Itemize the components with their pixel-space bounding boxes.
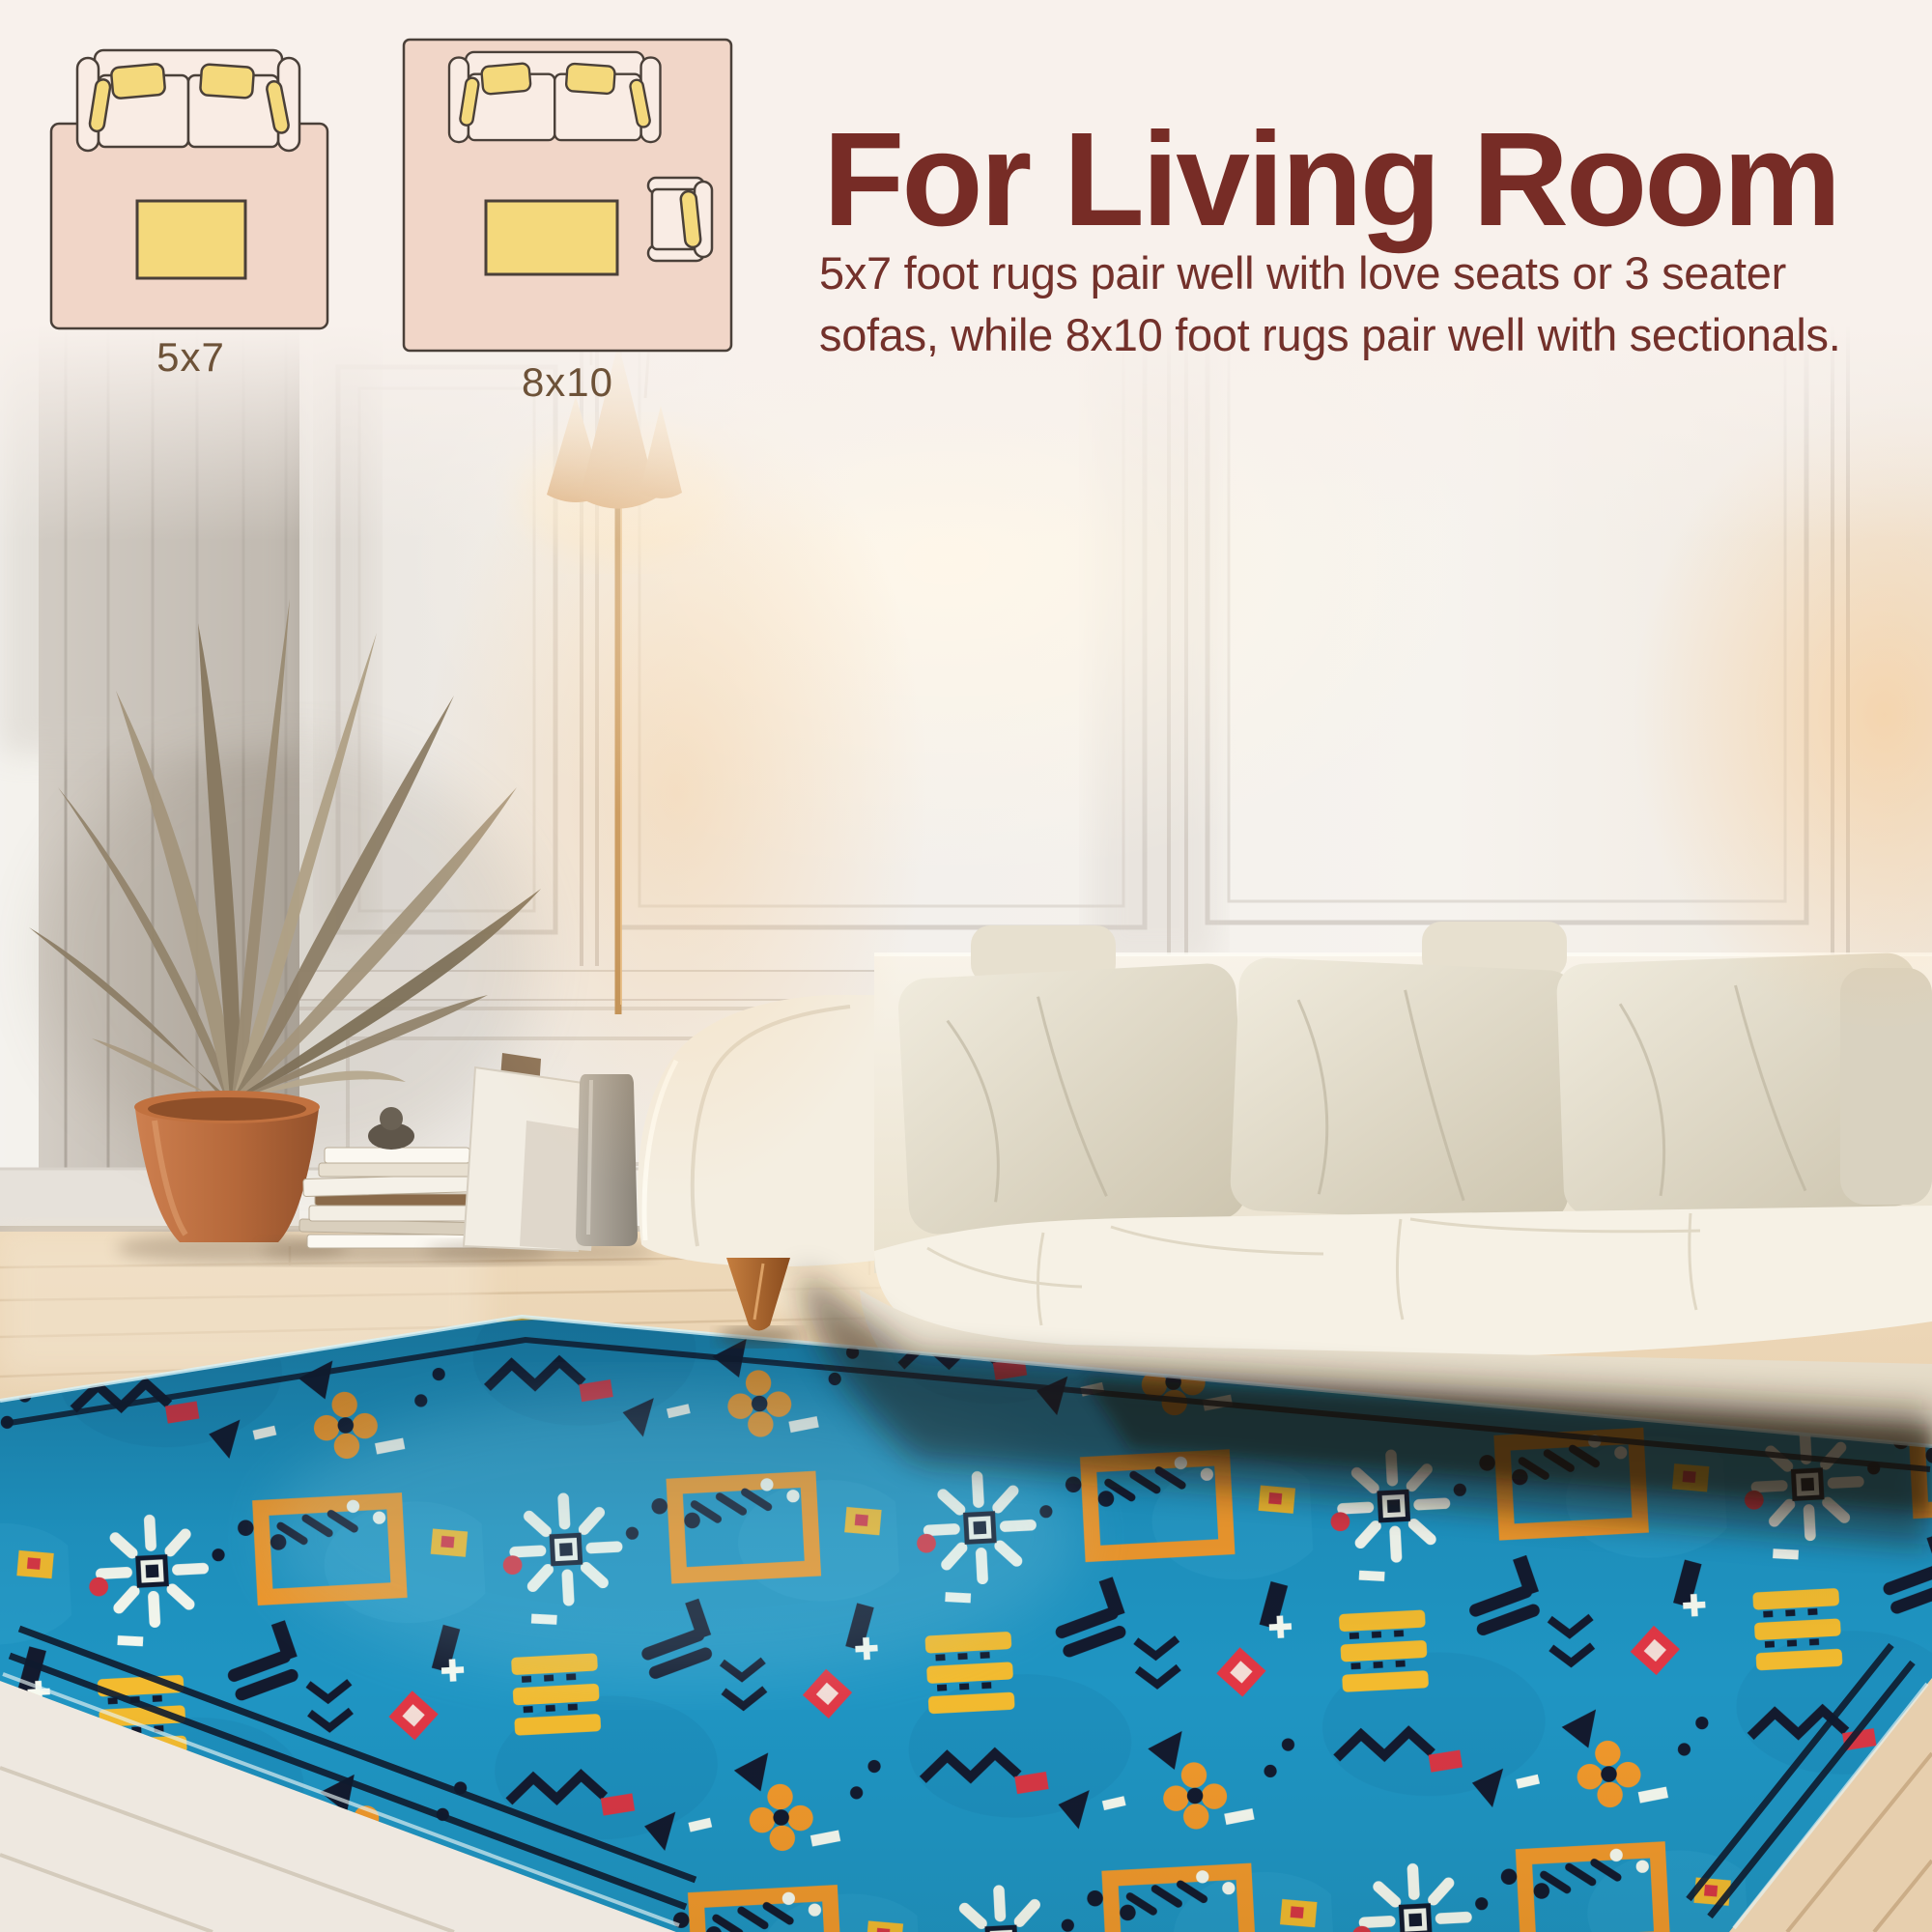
sofa-top-view — [77, 50, 299, 151]
size-diagram-5x7 — [48, 48, 333, 338]
page-title: For Living Room — [823, 110, 1924, 250]
coffee-table — [137, 201, 245, 278]
room-photo — [0, 251, 1932, 1932]
size-diagram-8x10 — [401, 37, 734, 355]
armchair-top-view — [648, 178, 712, 261]
size-label-8x10: 8x10 — [401, 359, 734, 406]
coffee-table — [486, 201, 617, 274]
size-label-5x7: 5x7 — [48, 334, 333, 381]
sofa-top-view — [449, 52, 661, 142]
page-description: 5x7 foot rugs pair well with love seats … — [819, 242, 1930, 367]
product-infographic: 5x7 — [0, 0, 1932, 1932]
